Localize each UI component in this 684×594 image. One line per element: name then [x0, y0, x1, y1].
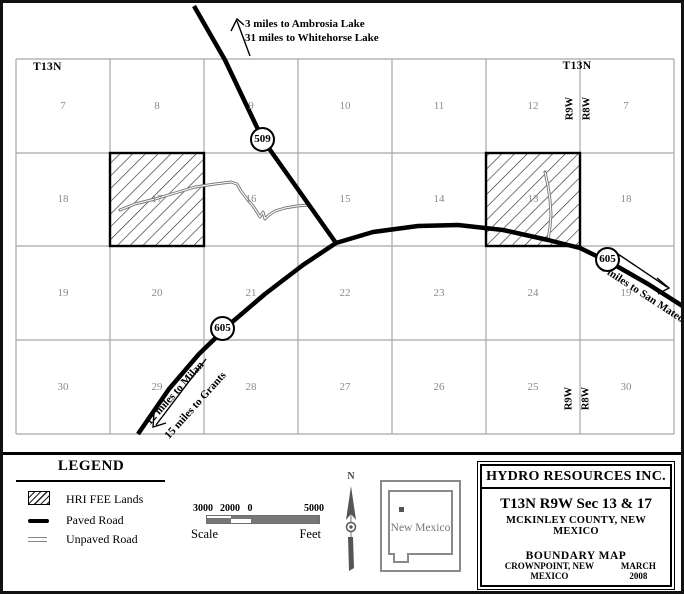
section-number: 25	[519, 381, 547, 393]
footer-date: MARCH 2008	[612, 561, 665, 581]
north-label: N	[339, 471, 363, 482]
range-label-r9w-bottom: R9W	[564, 384, 575, 414]
range-label-r8w-bottom: R8W	[581, 384, 592, 414]
township-label-left: T13N	[33, 61, 62, 73]
section-number: 15	[331, 193, 359, 205]
section-number: 21	[237, 287, 265, 299]
section-number: 8	[143, 100, 171, 112]
section-number: 20	[143, 287, 171, 299]
title-block: HYDRO RESOURCES INC. T13N R9W Sec 13 & 1…	[477, 461, 675, 590]
route-shield-605-east: 605	[595, 247, 620, 272]
state-inset-label: New Mexico	[380, 522, 461, 534]
whitehorse-line2: 31 miles to Whitehorse Lake	[245, 31, 379, 45]
section-number: 7	[49, 100, 77, 112]
route-shield-509: 509	[250, 127, 275, 152]
section-number: 30	[612, 381, 640, 393]
section-number: 22	[331, 287, 359, 299]
section-number: 18	[49, 193, 77, 205]
range-label-r8w-top: R8W	[582, 94, 593, 124]
section-number: 27	[331, 381, 359, 393]
section-number: 13	[519, 193, 547, 205]
section-number: 28	[237, 381, 265, 393]
title-block-footer: CROWNPOINT, NEW MEXICO MARCH 2008	[487, 561, 665, 581]
section-number: 23	[425, 287, 453, 299]
section-number: 24	[519, 287, 547, 299]
section-number: 18	[612, 193, 640, 205]
section-number: 9	[237, 100, 265, 112]
section-number: 19	[49, 287, 77, 299]
ambrosia-line1: 3 miles to Ambrosia Lake	[245, 17, 379, 31]
company-name: HYDRO RESOURCES INC.	[482, 466, 670, 489]
section-number: 30	[49, 381, 77, 393]
map-sheet: T13N T13N R9W R8W R9W R8W 78910111271817…	[0, 0, 684, 594]
footer-city: CROWNPOINT, NEW MEXICO	[487, 561, 612, 581]
section-number: 17	[143, 193, 171, 205]
section-number: 26	[425, 381, 453, 393]
township-range-title: T13N R9W Sec 13 & 17	[482, 496, 670, 513]
section-number: 16	[237, 193, 265, 205]
route-shield-605-southwest: 605	[210, 316, 235, 341]
section-number: 14	[425, 193, 453, 205]
section-number: 10	[331, 100, 359, 112]
county-state-title: MCKINLEY COUNTY, NEW MEXICO	[482, 515, 670, 537]
range-label-r9w-top: R9W	[565, 94, 576, 124]
title-block-inner: HYDRO RESOURCES INC. T13N R9W Sec 13 & 1…	[480, 464, 672, 587]
ambrosia-distance-label: 3 miles to Ambrosia Lake 31 miles to Whi…	[245, 17, 379, 45]
section-number: 12	[519, 100, 547, 112]
township-label-right: T13N	[561, 60, 593, 72]
section-number: 11	[425, 100, 453, 112]
north-arrow-icon	[346, 486, 356, 571]
section-number: 7	[612, 100, 640, 112]
